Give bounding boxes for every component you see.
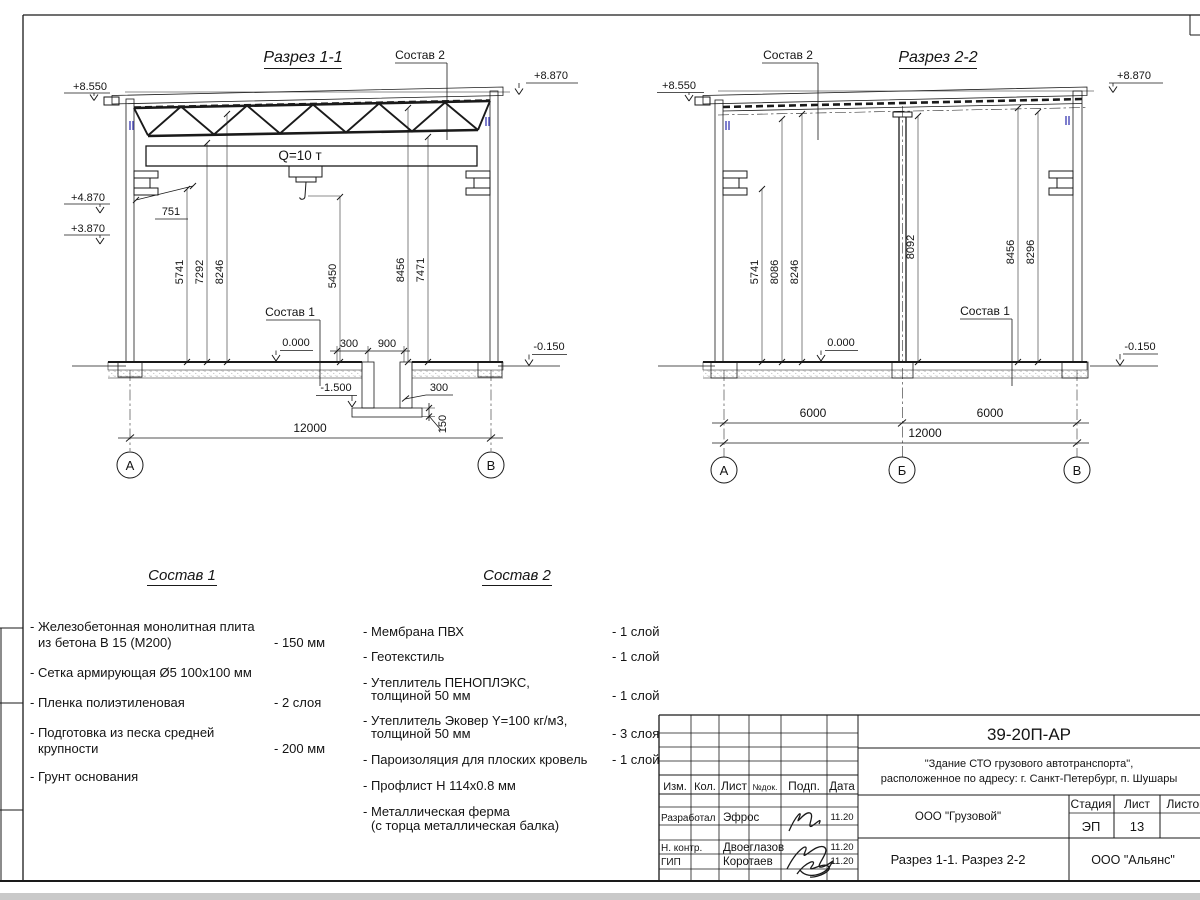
dim-900-label: 900 bbox=[378, 338, 396, 350]
signature-1 bbox=[789, 813, 820, 831]
title-block: 39-20П-АР "Здание СТО грузового автотран… bbox=[659, 715, 1200, 881]
row1-role: Разработал bbox=[661, 812, 716, 824]
sostav1-title: Состав 1 bbox=[148, 567, 216, 584]
elev-3870-label: +3.870 bbox=[71, 223, 105, 235]
dim-12000-label: 12000 bbox=[293, 421, 327, 435]
sostav2-item: - Пароизоляция для плоских кровель bbox=[363, 752, 588, 767]
corbel-left-2 bbox=[723, 171, 747, 195]
floor-slab bbox=[108, 362, 503, 378]
dim-5450-label: 5450 bbox=[327, 264, 339, 288]
section-2-2: Разрез 2-2 bbox=[657, 48, 1163, 483]
sostav2-item: толщиной 50 мм bbox=[371, 726, 471, 741]
sostav2-item: толщиной 50 мм bbox=[371, 688, 471, 703]
sheet-value: 13 bbox=[1130, 819, 1144, 834]
row2-date: 11.20 bbox=[830, 842, 853, 853]
sostav1-item: крупности bbox=[38, 741, 98, 756]
dim2-8092-label: 8092 bbox=[905, 235, 917, 259]
sostav1-leader-label: Состав 1 bbox=[265, 305, 315, 319]
dim-7471-label: 7471 bbox=[415, 258, 427, 282]
corbel-right bbox=[466, 171, 490, 195]
sostav1-leader2-label: Состав 1 bbox=[960, 304, 1010, 318]
section-1-1: Разрез 1-1 Q=10 т bbox=[64, 48, 578, 478]
wall-left-2 bbox=[715, 100, 723, 362]
sostav2-title: Состав 2 bbox=[483, 567, 551, 584]
axis2-b-label: Б bbox=[898, 463, 907, 478]
sostav2-item: - Металлическая ферма bbox=[363, 804, 511, 819]
row1-date: 11.20 bbox=[830, 812, 853, 823]
sostav2-leader2-label: Состав 2 bbox=[763, 48, 813, 62]
sostav1-item: - Сетка армирующая Ø5 100х100 мм bbox=[30, 665, 252, 680]
col-izm: Изм. bbox=[663, 781, 687, 793]
elev-8550-label: +8.550 bbox=[73, 81, 107, 93]
dim-300b-label: 300 bbox=[430, 382, 448, 394]
stage-value: ЭП bbox=[1082, 819, 1101, 834]
dim2-5741-label: 5741 bbox=[749, 260, 761, 284]
crane-beam: Q=10 т bbox=[146, 146, 477, 199]
dim-6000b-label: 6000 bbox=[977, 406, 1004, 420]
rail-stop-left2-icon bbox=[726, 121, 729, 130]
section-2-title: Разрез 2-2 bbox=[898, 49, 977, 66]
crane-capacity-label: Q=10 т bbox=[278, 148, 321, 163]
wall-right-2 bbox=[1073, 91, 1082, 362]
elevation-marks-2: +8.550 +8.870 0.000 -0.150 bbox=[657, 70, 1163, 366]
axis2-c-label: В bbox=[1073, 463, 1082, 478]
col-list: Лист bbox=[721, 779, 748, 793]
dim2-8086-label: 8086 bbox=[769, 260, 781, 284]
sostav1-value: - 200 мм bbox=[274, 741, 325, 756]
sostav1-value: - 2 слоя bbox=[274, 695, 321, 710]
signature-2 bbox=[787, 846, 833, 875]
vertical-dimensions-2: 5741 8086 8246 8092 8456 8296 bbox=[749, 105, 1041, 365]
col-data: Дата bbox=[829, 781, 855, 793]
sostav2-item: - Геотекстиль bbox=[363, 649, 444, 664]
sostav-1-list: Состав 1 - Железобетонная монолитная пли… bbox=[30, 567, 325, 784]
elev-0000-label: 0.000 bbox=[282, 337, 310, 349]
dim2-12000-label: 12000 bbox=[908, 426, 942, 440]
elev2-0000-label: 0.000 bbox=[827, 337, 855, 349]
sostav1-item: - Грунт основания bbox=[30, 769, 138, 784]
sostav1-item: - Пленка полиэтиленовая bbox=[30, 695, 185, 710]
sostav2-value: - 1 слой bbox=[612, 752, 660, 767]
sostav2-leader-label: Состав 2 bbox=[395, 48, 445, 62]
object-name-line2: расположенное по адресу: г. Санкт-Петерб… bbox=[881, 773, 1178, 785]
corbel-right-2 bbox=[1049, 171, 1073, 195]
sostav2-value: - 1 слой bbox=[612, 624, 660, 639]
sostav-leaders-2: Состав 2 Состав 1 bbox=[762, 48, 1012, 386]
floor-slab-2 bbox=[703, 362, 1088, 378]
elev2-m0150-label: -0.150 bbox=[1124, 341, 1155, 353]
sostav2-value: - 1 слой bbox=[612, 649, 660, 664]
row3-name: Коротаев bbox=[723, 856, 773, 868]
dim2-8296-label: 8296 bbox=[1025, 240, 1037, 264]
elev2-8550-label: +8.550 bbox=[662, 80, 696, 92]
wall-right bbox=[490, 91, 498, 362]
sostav1-item: - Подготовка из песка средней bbox=[30, 725, 214, 740]
row2-role: Н. контр. bbox=[661, 843, 702, 854]
axis-b-label: В bbox=[487, 458, 496, 473]
row3-role: ГИП bbox=[661, 857, 681, 868]
sheets-header: Листов bbox=[1167, 797, 1200, 811]
axis2-a-label: А bbox=[720, 463, 729, 478]
axis-dimensions-2: 6000 6000 12000 А Б В bbox=[711, 368, 1090, 483]
stage-header: Стадия bbox=[1071, 797, 1112, 811]
company: ООО "Грузовой" bbox=[915, 811, 1001, 823]
sostav1-item: из бетона В 15 (М200) bbox=[38, 635, 172, 650]
dim2-8456-label: 8456 bbox=[1005, 240, 1017, 264]
roof-slab-2 bbox=[703, 87, 1087, 104]
sostav2-value: - 1 слой bbox=[612, 688, 660, 703]
dim-6000a-label: 6000 bbox=[800, 406, 827, 420]
middle-column bbox=[893, 106, 912, 362]
object-name-line1: "Здание СТО грузового автотранспорта", bbox=[925, 758, 1134, 770]
doc-number: 39-20П-АР bbox=[987, 725, 1071, 744]
rail-stop-right-icon bbox=[486, 117, 489, 126]
dim2-8246-label: 8246 bbox=[789, 260, 801, 284]
dim-8246-label: 8246 bbox=[214, 260, 226, 284]
elev2-8870-label: +8.870 bbox=[1117, 70, 1151, 82]
sostav1-item: - Железобетонная монолитная плита bbox=[30, 619, 255, 634]
dim-5741-label: 5741 bbox=[174, 260, 186, 284]
dim-8456-label: 8456 bbox=[395, 258, 407, 282]
dim-150-label: 150 bbox=[437, 415, 449, 433]
sostav2-value: - 3 слоя bbox=[612, 726, 659, 741]
col-podp: Подп. bbox=[788, 779, 820, 793]
corbel-left bbox=[134, 171, 158, 195]
row3-date: 11.20 bbox=[830, 856, 853, 867]
sheet-header: Лист bbox=[1124, 797, 1151, 811]
sostav2-item: - Профлист Н 114х0.8 мм bbox=[363, 778, 516, 793]
drawing-canvas: Разрез 1-1 Q=10 т bbox=[0, 0, 1200, 900]
elev-8870-label: +8.870 bbox=[534, 70, 568, 82]
pit bbox=[352, 362, 422, 417]
row1-name: Эфрос bbox=[723, 812, 760, 824]
elev-m0150-label: -0.150 bbox=[533, 341, 564, 353]
row2-name: Двоеглазов bbox=[723, 842, 784, 854]
dim-7292-label: 7292 bbox=[194, 260, 206, 284]
sheet-title: Разрез 1-1. Разрез 2-2 bbox=[891, 852, 1026, 867]
sheet-edge-shadow bbox=[0, 893, 1200, 900]
sostav1-value: - 150 мм bbox=[274, 635, 325, 650]
elev-m1500-label: -1.500 bbox=[320, 382, 351, 394]
dim-300a-label: 300 bbox=[340, 338, 358, 350]
dim-751-label: 751 bbox=[162, 206, 180, 218]
section-1-title: Разрез 1-1 bbox=[263, 49, 342, 66]
col-ndok: №док. bbox=[753, 782, 778, 792]
sostav2-item: - Мембрана ПВХ bbox=[363, 624, 464, 639]
axis-a-label: А bbox=[126, 458, 135, 473]
steel-truss bbox=[134, 101, 490, 136]
col-kol: Кол. bbox=[694, 781, 716, 793]
vertical-dimensions: 5741 7292 8246 5450 8456 7471 bbox=[174, 105, 431, 365]
sostav-2-list: Состав 2 - Мембрана ПВХ - 1 слой - Геоте… bbox=[363, 567, 660, 833]
rail-stop-right2-icon bbox=[1066, 116, 1069, 125]
elev-4870-label: +4.870 bbox=[71, 192, 105, 204]
wall-left bbox=[126, 99, 134, 362]
sostav2-item: (с торца металлическая балка) bbox=[371, 818, 559, 833]
drawing-sheet: Разрез 1-1 Q=10 т bbox=[0, 0, 1200, 900]
company-2: ООО "Альянс" bbox=[1091, 853, 1175, 867]
rail-stop-left-icon bbox=[130, 121, 133, 130]
